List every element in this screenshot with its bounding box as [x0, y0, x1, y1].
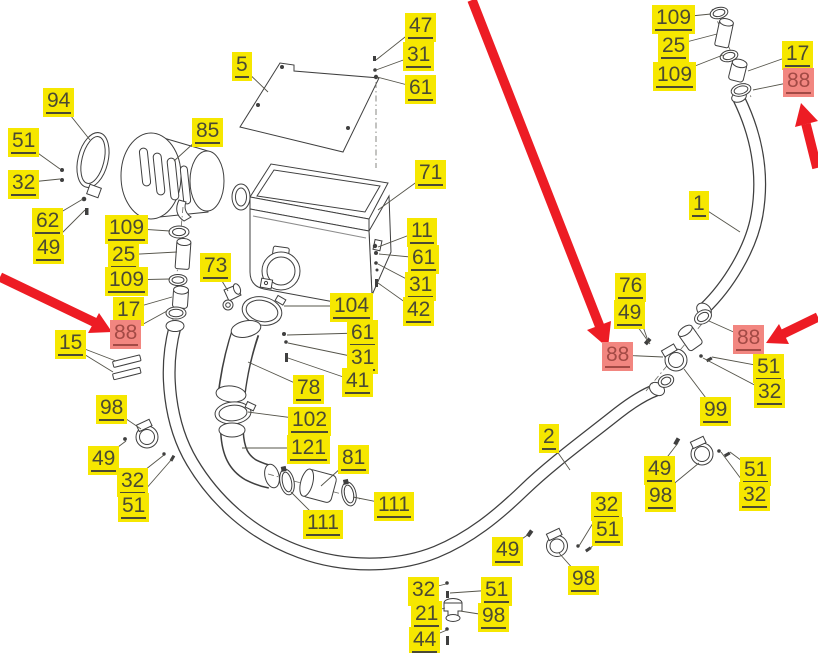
leader-line [697, 204, 740, 232]
leader-line [21, 179, 60, 183]
leader-line [703, 358, 768, 392]
leader-line [240, 65, 268, 92]
hose-1 [694, 90, 760, 320]
leader-line [629, 286, 647, 338]
leader-layer [21, 14, 797, 640]
leader-line [288, 358, 355, 381]
leader-line [684, 369, 715, 410]
leader-line [579, 505, 604, 546]
leader-line [124, 279, 170, 280]
leader-line [753, 81, 797, 90]
pins-15 [110, 355, 144, 380]
leader-line [658, 443, 678, 469]
leader-line [102, 441, 126, 459]
leader-line [659, 463, 699, 496]
leader-line [21, 141, 60, 169]
pre-cleaner-cap-85 [121, 133, 224, 221]
leader-line [422, 584, 446, 590]
leader-line [506, 534, 529, 550]
red-arrow-shaft [472, 0, 600, 327]
leader-line [378, 283, 416, 310]
top-right-parts-column [709, 5, 752, 98]
leader-line [423, 630, 447, 640]
red-arrow-shaft [806, 124, 817, 168]
elbow-hose-78 [215, 318, 262, 403]
elbow-hose-121 [219, 423, 282, 489]
clamp-99 [661, 344, 687, 371]
leader-line [124, 228, 170, 231]
leader-line [450, 590, 494, 593]
leader-line [559, 553, 582, 579]
parts-diagram: 9451326249109251091788155854731617111613… [0, 0, 818, 653]
leader-line [460, 611, 492, 616]
clamp-102 [214, 400, 256, 425]
leader-line [424, 608, 445, 614]
leader-line [69, 343, 116, 361]
diagram-drawing [0, 0, 818, 653]
clamp-98-right-group [673, 436, 730, 465]
leader-line [59, 101, 90, 140]
leader-line [288, 343, 360, 358]
grommet-21-group [444, 581, 462, 645]
leader-line [748, 54, 796, 71]
red-arrow-shaft [0, 277, 96, 323]
clamp-98-left-group [123, 419, 175, 461]
leader-line [628, 313, 650, 344]
clamp-111-left [277, 465, 297, 496]
leader-line [131, 455, 164, 481]
red-arrow-head [795, 103, 818, 127]
leader-line [377, 77, 419, 88]
leader-line [353, 497, 393, 505]
cover-plate-5 [240, 56, 379, 168]
leader-line [378, 264, 418, 285]
leader-line [672, 55, 723, 75]
red-arrow-shaft [783, 317, 818, 334]
leader-line [69, 345, 113, 372]
left-parts-column [166, 207, 191, 330]
hose-81-group [268, 465, 360, 507]
right-connector-group [644, 307, 714, 391]
leader-line [709, 321, 747, 338]
leader-line [127, 297, 172, 310]
leader-line [618, 355, 663, 357]
clamp-98-mid-group [526, 528, 592, 556]
band-clamp-94 [60, 129, 114, 215]
leader-line [671, 34, 717, 46]
leader-line [671, 14, 711, 18]
leader-line [721, 452, 753, 495]
leader-line [110, 408, 141, 429]
leader-line [47, 210, 85, 248]
leader-line [127, 311, 167, 333]
leader-line [378, 173, 429, 210]
leader-line [712, 357, 766, 367]
leader-line [376, 26, 419, 60]
leader-line [376, 55, 417, 70]
leader-line [248, 412, 309, 420]
leader-line [122, 252, 177, 255]
leader-line [589, 530, 606, 550]
air-filter-housing-71 [232, 164, 391, 306]
clamp-111-right [339, 478, 358, 507]
leader-line [131, 459, 172, 506]
leader-line [730, 452, 754, 470]
leader-line [213, 266, 228, 291]
leader-line [248, 362, 306, 388]
hose-81 [297, 468, 337, 504]
leader-line [287, 333, 360, 335]
